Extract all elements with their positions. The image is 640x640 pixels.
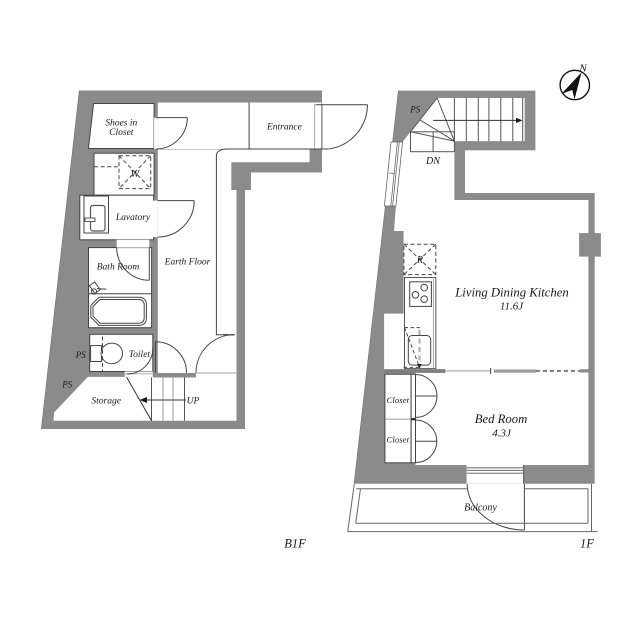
svg-text:Storage: Storage [91, 397, 121, 407]
svg-text:PS: PS [61, 380, 72, 390]
svg-text:Shoes in: Shoes in [105, 118, 137, 128]
svg-text:DN: DN [425, 156, 441, 167]
svg-text:Living Dining Kitchen: Living Dining Kitchen [454, 286, 568, 300]
svg-text:11.6J: 11.6J [500, 301, 524, 313]
svg-text:Closet: Closet [109, 128, 134, 138]
svg-text:Bed Room: Bed Room [475, 412, 528, 426]
svg-text:Earth Floor: Earth Floor [164, 258, 211, 268]
svg-text:Balcony: Balcony [464, 503, 497, 514]
svg-text:4.3J: 4.3J [492, 428, 512, 440]
svg-text:W: W [131, 169, 141, 180]
svg-text:N: N [578, 63, 587, 75]
svg-text:PS: PS [409, 105, 420, 115]
svg-text:1F: 1F [580, 537, 594, 551]
svg-text:Lavatory: Lavatory [115, 213, 151, 223]
svg-text:Entrance: Entrance [266, 123, 302, 133]
svg-text:Closet: Closet [387, 395, 410, 405]
svg-text:Closet: Closet [387, 435, 410, 445]
svg-text:Toilet: Toilet [129, 350, 151, 360]
svg-text:Bath Room: Bath Room [97, 263, 140, 273]
svg-text:UP: UP [187, 396, 200, 406]
svg-text:PS: PS [75, 350, 86, 360]
svg-text:B1F: B1F [284, 536, 306, 550]
svg-text:R: R [416, 255, 423, 266]
